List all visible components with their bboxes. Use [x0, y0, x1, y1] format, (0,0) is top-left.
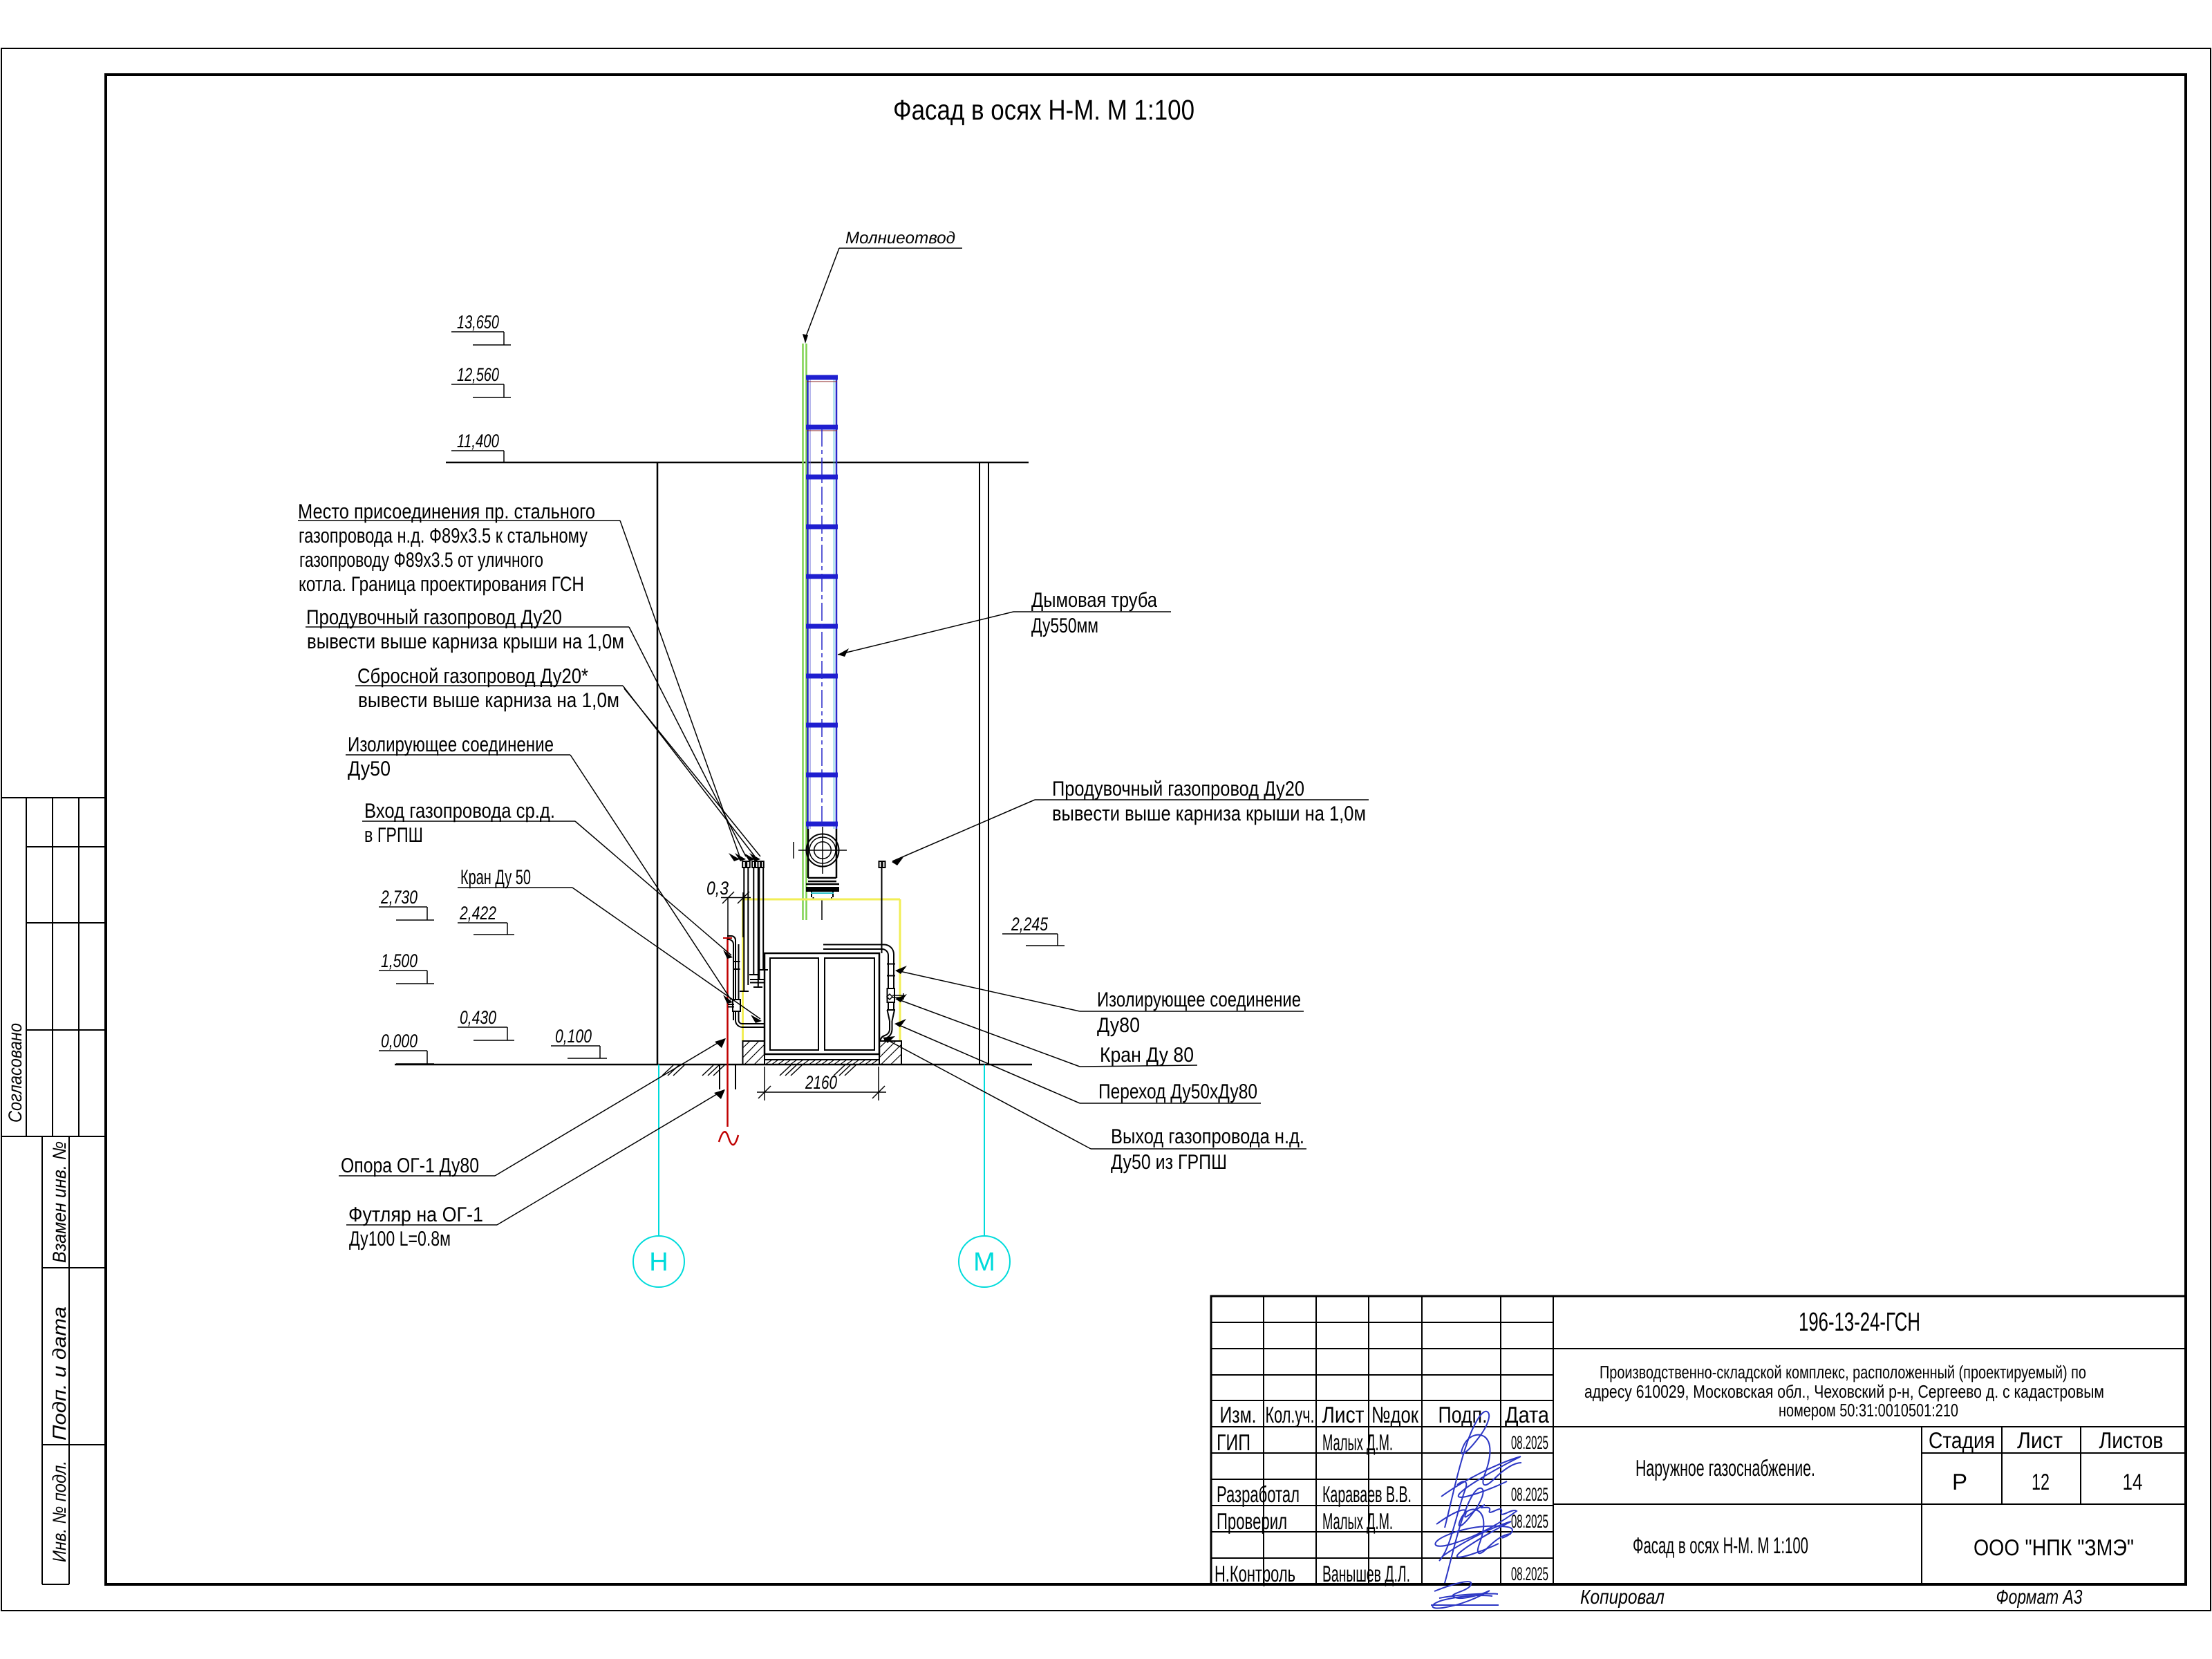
- svg-text:Ду80: Ду80: [1097, 1014, 1140, 1037]
- svg-text:Фасад в осях Н-М. М 1:100: Фасад в осях Н-М. М 1:100: [1633, 1533, 1808, 1558]
- svg-text:13,650: 13,650: [457, 312, 499, 332]
- svg-text:Опора ОГ-1 Ду80: Опора ОГ-1 Ду80: [341, 1154, 479, 1177]
- svg-text:0,100: 0,100: [555, 1026, 592, 1047]
- svg-text:адресу 610029, Московская обл.: адресу 610029, Московская обл., Чеховски…: [1584, 1381, 2104, 1402]
- svg-text:11,400: 11,400: [457, 431, 499, 451]
- svg-text:котла. Граница проектирования: котла. Граница проектирования ГСН: [299, 573, 584, 596]
- svg-text:Сбросной газопровод Ду20*: Сбросной газопровод Ду20*: [357, 665, 588, 688]
- svg-text:Листов: Листов: [2099, 1427, 2164, 1453]
- svg-text:Лист: Лист: [2017, 1427, 2063, 1453]
- svg-text:Стадия: Стадия: [1929, 1427, 1995, 1453]
- svg-text:газопроводу Ф89х3.5 от уличног: газопроводу Ф89х3.5 от уличного: [299, 549, 543, 572]
- svg-text:Место присоединения пр. стальн: Место присоединения пр. стального: [298, 500, 595, 523]
- svg-text:Малых Д.М.: Малых Д.М.: [1322, 1508, 1393, 1534]
- svg-text:вывести выше карниза на 1,0м: вывести выше карниза на 1,0м: [358, 689, 619, 712]
- svg-text:вывести выше карниза крыши на: вывести выше карниза крыши на 1,0м: [307, 630, 624, 653]
- svg-text:Наружное газоснабжение.: Наружное газоснабжение.: [1635, 1455, 1815, 1481]
- svg-text:0,000: 0,000: [381, 1031, 418, 1051]
- svg-text:2,245: 2,245: [1011, 914, 1049, 935]
- svg-text:12,560: 12,560: [457, 364, 499, 385]
- svg-text:14: 14: [2123, 1469, 2143, 1494]
- svg-text:Инв. № подл.: Инв. № подл.: [49, 1461, 70, 1562]
- svg-text:Кол.уч.: Кол.уч.: [1266, 1402, 1315, 1427]
- svg-text:08.2025: 08.2025: [1511, 1511, 1548, 1532]
- svg-text:номером 50:31:0010501:210: номером 50:31:0010501:210: [1779, 1400, 1958, 1421]
- svg-text:Взамен инв. №: Взамен инв. №: [49, 1141, 70, 1263]
- svg-text:Согласовано: Согласовано: [5, 1023, 26, 1123]
- svg-text:Вход газопровода ср.д.: Вход газопровода ср.д.: [364, 800, 555, 823]
- svg-text:Ду100 L=0.8м: Ду100 L=0.8м: [349, 1228, 451, 1250]
- svg-text:Футляр на ОГ-1: Футляр на ОГ-1: [348, 1203, 483, 1226]
- svg-text:Малых Д.М.: Малых Д.М.: [1322, 1430, 1393, 1455]
- svg-text:2,730: 2,730: [380, 887, 418, 908]
- svg-text:Изолирующее соединение: Изолирующее соединение: [348, 733, 554, 756]
- svg-text:Ду50 из ГРПШ: Ду50 из ГРПШ: [1111, 1151, 1227, 1174]
- svg-text:2,422: 2,422: [459, 903, 496, 924]
- svg-text:Выход газопровода н.д.: Выход газопровода н.д.: [1111, 1125, 1304, 1148]
- svg-text:Фасад в осях Н-М. М 1:100: Фасад в осях Н-М. М 1:100: [893, 94, 1194, 126]
- svg-text:ГИП: ГИП: [1217, 1430, 1250, 1455]
- svg-text:1,500: 1,500: [381, 950, 418, 971]
- svg-text:Дымовая труба: Дымовая труба: [1031, 589, 1157, 612]
- svg-text:Дата: Дата: [1505, 1402, 1550, 1427]
- svg-text:Изм.: Изм.: [1220, 1402, 1257, 1427]
- svg-text:Н.Контроль: Н.Контроль: [1215, 1561, 1295, 1586]
- svg-text:196-13-24-ГСН: 196-13-24-ГСН: [1799, 1308, 1920, 1337]
- svg-text:Переход Ду50хДу80: Переход Ду50хДу80: [1098, 1080, 1257, 1103]
- svg-text:вывести выше карниза крыши на: вывести выше карниза крыши на 1,0м: [1052, 803, 1366, 825]
- svg-text:Подп.: Подп.: [1438, 1402, 1488, 1427]
- svg-text:№док: №док: [1371, 1402, 1418, 1427]
- svg-text:2160: 2160: [805, 1072, 837, 1093]
- svg-text:Ванышев Д.Л.: Ванышев Д.Л.: [1322, 1561, 1410, 1586]
- svg-text:газопровода н.д. Ф89х3.5 к ста: газопровода н.д. Ф89х3.5 к стальному: [299, 525, 588, 547]
- svg-text:0,3: 0,3: [706, 878, 729, 899]
- svg-text:Производственно-складской комп: Производственно-складской комплекс, расп…: [1600, 1362, 2086, 1382]
- svg-text:08.2025: 08.2025: [1511, 1484, 1548, 1505]
- svg-text:Проверил: Проверил: [1217, 1508, 1287, 1534]
- svg-text:0,430: 0,430: [460, 1007, 496, 1028]
- svg-text:Лист: Лист: [1322, 1402, 1365, 1427]
- svg-text:Кран Ду 80: Кран Ду 80: [1100, 1044, 1194, 1067]
- svg-text:Молниеотвод: Молниеотвод: [845, 229, 955, 247]
- svg-text:08.2025: 08.2025: [1511, 1564, 1548, 1584]
- svg-text:ООО "НПК "ЗМЭ": ООО "НПК "ЗМЭ": [1974, 1535, 2134, 1560]
- svg-text:Изолирующее соединение: Изолирующее соединение: [1097, 988, 1301, 1011]
- svg-text:Караваев В.В.: Караваев В.В.: [1322, 1481, 1412, 1507]
- svg-text:Н: Н: [649, 1248, 668, 1277]
- svg-text:Кран Ду 50: Кран Ду 50: [460, 866, 531, 889]
- svg-text:Продувочный газопровод Ду20: Продувочный газопровод Ду20: [306, 606, 562, 629]
- svg-text:Ду50: Ду50: [348, 758, 391, 780]
- svg-text:Ду550мм: Ду550мм: [1031, 615, 1098, 637]
- svg-text:в ГРПШ: в ГРПШ: [364, 824, 423, 847]
- svg-text:08.2025: 08.2025: [1511, 1432, 1548, 1453]
- svg-text:Формат А3: Формат А3: [1996, 1586, 2083, 1609]
- svg-text:Копировал: Копировал: [1580, 1586, 1665, 1609]
- svg-text:Разработал: Разработал: [1217, 1481, 1300, 1507]
- svg-text:12: 12: [2032, 1469, 2050, 1494]
- svg-text:Продувочный газопровод Ду20: Продувочный газопровод Ду20: [1052, 778, 1304, 800]
- svg-text:М: М: [973, 1248, 995, 1277]
- svg-text:Р: Р: [1952, 1469, 1967, 1494]
- svg-text:Подп. и дата: Подп. и дата: [49, 1306, 70, 1441]
